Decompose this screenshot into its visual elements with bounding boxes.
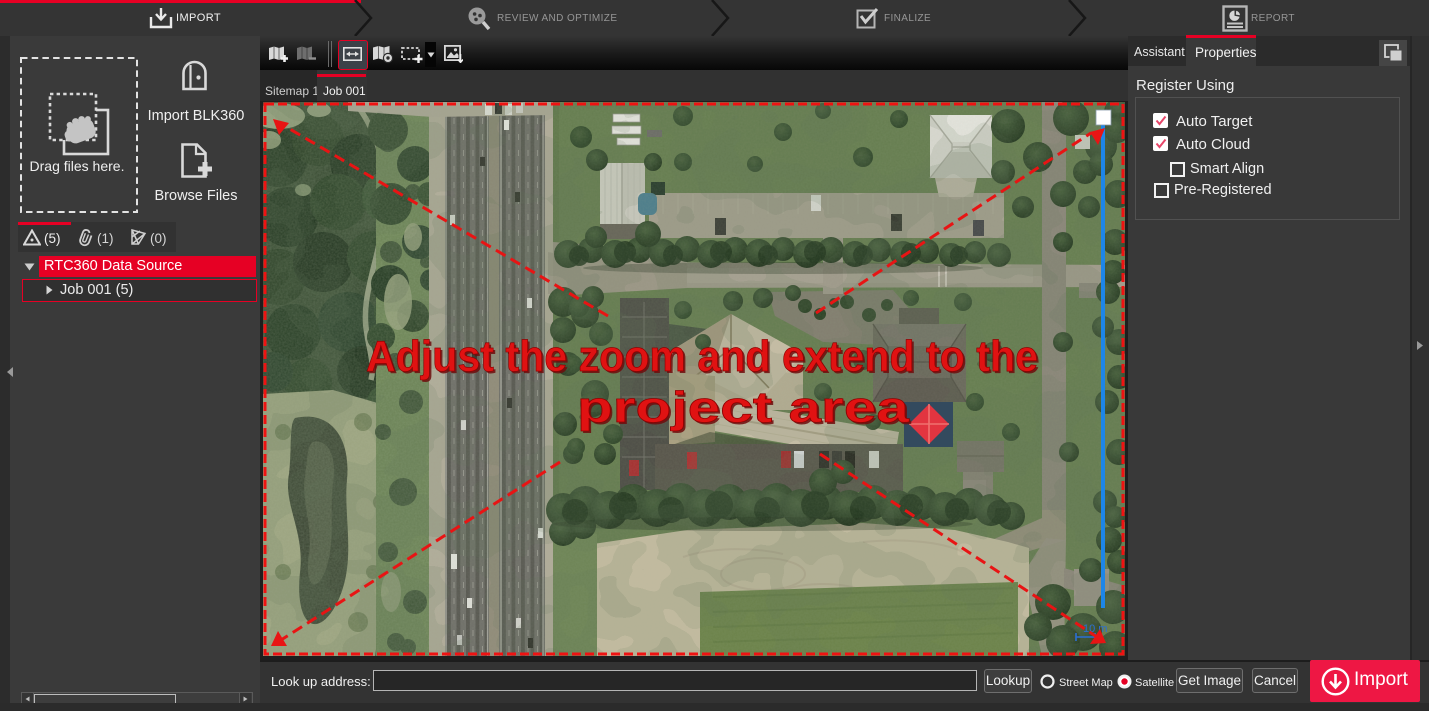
svg-text:Adjust the zoom and extend to: Adjust the zoom and extend to the bbox=[366, 332, 1038, 381]
svg-text:project area: project area bbox=[577, 383, 910, 432]
